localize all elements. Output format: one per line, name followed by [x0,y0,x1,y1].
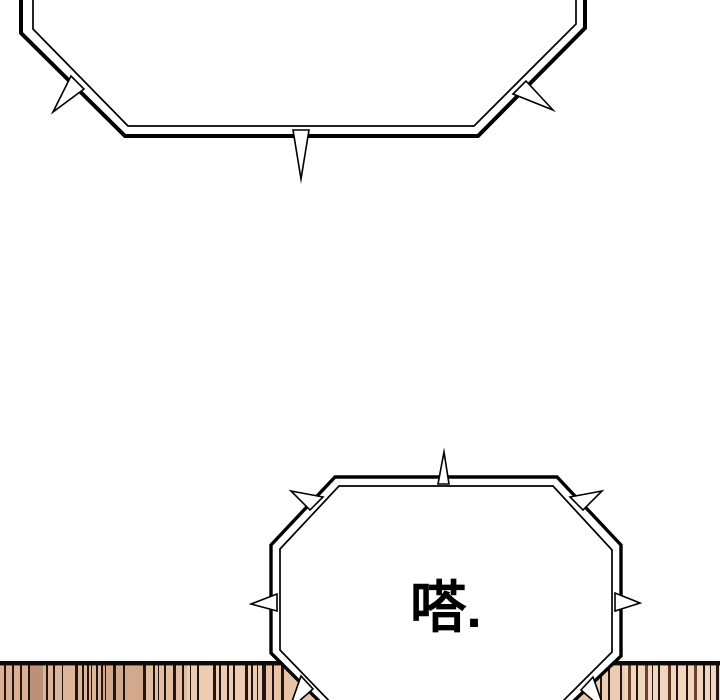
wood-grain-line [113,665,116,700]
comic-panel: 嗒. [0,0,720,700]
wood-grain-line [4,665,6,700]
wood-grain-line [628,665,631,700]
wood-grain-line [219,665,221,700]
wood-grain-line [20,665,22,700]
wood-grain-line [620,665,622,700]
wood-grain-line [143,665,146,700]
wood-grain-line [12,665,14,700]
wood-grain-line [652,665,653,700]
wood-plank-shade [101,665,143,700]
wood-grain-line [257,665,258,700]
panel-canvas: 嗒. [0,0,720,700]
wood-grain-line [251,665,253,700]
wood-grain-line [668,665,671,700]
wood-grain-line [636,665,638,700]
wood-grain-line [105,665,106,700]
wood-grain-line [245,665,248,700]
wood-grain-line [262,665,266,700]
wood-grain-line [658,665,660,700]
wood-grain-line [197,665,199,700]
wood-grain-line [645,665,648,700]
wood-grain-line [82,665,84,700]
wood-grain-line [53,665,55,700]
wood-grain-line [182,665,184,700]
wood-grain-line [75,665,78,700]
wood-grain-line [227,665,229,700]
wood-grain-line [676,665,678,700]
wood-grain-line [716,665,719,700]
wood-plank-shade [43,665,101,700]
wood-grain-line [158,665,159,700]
wood-grain-line [46,665,48,700]
wood-grain-line [694,665,697,700]
wood-grain-line [28,665,30,700]
wood-grain-line [686,665,688,700]
wood-grain-line [153,665,155,700]
wood-grain-line [164,665,166,700]
wood-grain-line [96,665,98,700]
wood-grain-line [101,665,103,700]
wood-grain-line [213,665,216,700]
wood-grain-line [703,665,705,700]
wood-plank-shade [30,665,43,700]
wood-grain-line [233,665,235,700]
bubble-top-outer-outline [21,0,585,136]
wood-grain-line [62,665,63,700]
sfx-text: 嗒. [410,576,482,639]
wood-grain-line [281,665,284,700]
wood-plank-shade [625,665,720,700]
wood-grain-line [190,665,191,700]
wood-grain-line [272,665,274,700]
wood-grain-line [91,665,92,700]
wood-grain-line [123,665,125,700]
wood-grain-line [87,665,89,700]
wood-grain-line [173,665,176,700]
wood-grain-line [710,665,711,700]
